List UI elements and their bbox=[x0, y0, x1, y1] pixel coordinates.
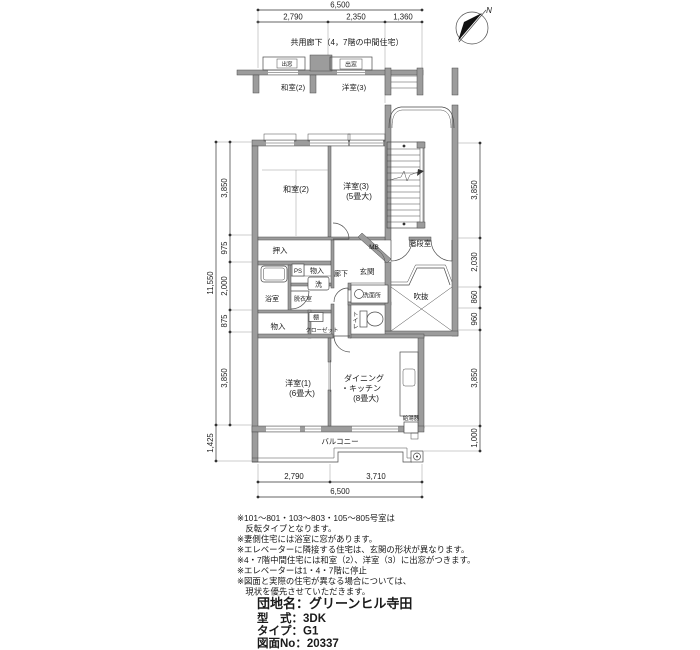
balcony-parapet bbox=[252, 452, 412, 462]
room-label-youshitsu1: 洋室(1) bbox=[285, 378, 311, 388]
dim-right-seg-4: 960 bbox=[470, 312, 479, 326]
room-label-ps: PS bbox=[294, 269, 302, 275]
room-label-youshitsu3: 洋室(3) bbox=[343, 181, 369, 191]
room-label-rouka: 廊下 bbox=[334, 269, 348, 278]
room-label-tana: 棚 bbox=[313, 314, 319, 322]
bay-left-label: 出窓 bbox=[281, 60, 293, 68]
north-arrow-icon bbox=[458, 13, 482, 41]
staircase bbox=[387, 142, 425, 228]
upper-section: 出窓 出窓 和室(2) 洋室(3) bbox=[237, 55, 458, 95]
room-label-toire: トイレ bbox=[351, 311, 358, 329]
dim-right-seg-6: 1,000 bbox=[470, 428, 479, 448]
upper-room-right-label: 洋室(3) bbox=[342, 82, 367, 92]
compass: N bbox=[456, 6, 492, 44]
room-label-yokushitsu: 浴室 bbox=[265, 294, 279, 303]
room-label-kyutouki: 給湯器 bbox=[403, 414, 420, 422]
title-plan-type: タイプ：G1 bbox=[257, 624, 319, 638]
dim-left-seg-5: 3,850 bbox=[220, 368, 229, 388]
note-line-4: ※エレベーターに隣接する住宅は、玄関の形状が異なります。 bbox=[237, 545, 469, 555]
room-label-fukinuke: 吹抜 bbox=[414, 291, 429, 301]
room-label-dining-1: ダイニング bbox=[344, 373, 384, 383]
toilet-tank bbox=[360, 311, 367, 327]
title-layout-type: 型 式：3DK bbox=[257, 611, 327, 625]
room-label-balcony: バルコニー bbox=[321, 437, 358, 446]
room-label-kaidanshitsu: 階段室 bbox=[409, 238, 432, 248]
dim-right-seg-2: 2,030 bbox=[470, 252, 479, 272]
dim-right-seg-5: 3,850 bbox=[470, 368, 479, 388]
room-label-washitsu2: 和室(2) bbox=[283, 184, 309, 194]
note-line-8: 現状を優先させていただきます。 bbox=[237, 587, 370, 597]
water-heater-box bbox=[404, 422, 418, 433]
kitchen-counter bbox=[400, 352, 418, 416]
dim-left-seg-1: 3,850 bbox=[220, 178, 229, 198]
room-label-monoire-lower: 物入 bbox=[271, 321, 286, 331]
bathtub bbox=[261, 266, 287, 282]
dim-bottom-seg-1: 2,790 bbox=[284, 472, 304, 481]
room-label-monoire-upper: 物入 bbox=[310, 266, 324, 275]
corridor-railing bbox=[391, 76, 417, 88]
bay-right-label: 出窓 bbox=[345, 61, 357, 69]
floor-plan-page: 6,500 2,790 2,350 1,360 N 共用廊下（4，7階の中間住宅… bbox=[0, 0, 700, 650]
stair-treads bbox=[387, 149, 420, 222]
title-block: 団地名：グリーンヒル寺田 型 式：3DK タイプ：G1 図面No：20337 bbox=[257, 596, 412, 650]
room-label-youshitsu3-size: (5畳大) bbox=[346, 191, 372, 201]
room-label-genkan: 玄関 bbox=[360, 266, 375, 276]
dim-left-seg-4: 875 bbox=[220, 314, 229, 328]
title-estate-name: 団地名：グリーンヒル寺田 bbox=[257, 596, 412, 611]
room-label-youshitsu1-size: (6畳大) bbox=[289, 388, 315, 398]
dim-left-seg-2: 975 bbox=[220, 241, 229, 255]
note-line-5: ※4・7階中間住宅には和室（2）、洋室（3）に出窓がつきます。 bbox=[237, 555, 475, 565]
room-label-dining-size: (8畳大) bbox=[353, 393, 379, 403]
toilet-bowl bbox=[367, 312, 383, 326]
void-railing bbox=[391, 268, 450, 285]
room-label-senmenjo: 洗面所 bbox=[363, 292, 381, 300]
washroom-door-arc bbox=[334, 288, 348, 302]
dim-bottom-total: 6,500 bbox=[330, 487, 350, 496]
compass-north-label: N bbox=[486, 6, 492, 15]
dim-left-seg-3: 2,000 bbox=[220, 276, 229, 296]
room-label-datsuishitsu: 脱衣室 bbox=[294, 295, 312, 303]
fixtures bbox=[261, 264, 418, 439]
sliding-door-symbol bbox=[329, 360, 331, 392]
dim-top-seg-2: 2,350 bbox=[346, 13, 366, 22]
note-line-1: ※101～801・103～803・105～805号室は bbox=[237, 513, 395, 523]
note-line-3: ※妻側住宅には浴室に窓があります。 bbox=[237, 534, 377, 544]
shared-corridor-label: 共用廊下（4，7階の中間住宅） bbox=[291, 37, 404, 47]
compass-circle bbox=[456, 12, 488, 44]
bottom-dimensions: 2,790 3,710 6,500 bbox=[257, 464, 424, 498]
dim-right-seg-1: 3,850 bbox=[470, 180, 479, 200]
dk-door-arc bbox=[334, 336, 350, 352]
neighbor-door-arc bbox=[431, 240, 452, 261]
room-label-closet: クローゼット bbox=[305, 326, 338, 334]
dim-top-seg-1: 2,790 bbox=[283, 13, 303, 22]
dim-bottom-seg-2: 3,710 bbox=[366, 472, 386, 481]
dim-top-seg-3: 1,360 bbox=[393, 13, 413, 22]
room3-door-arc bbox=[333, 223, 349, 239]
plan-walls bbox=[252, 105, 458, 462]
room-label-mb: MB bbox=[369, 244, 379, 251]
notes: ※101～801・103～803・105～805号室は 反転タイプとなります。 … bbox=[237, 513, 475, 597]
stair-direction-arrow bbox=[390, 171, 418, 181]
room-label-dining-2: ・キッチン bbox=[341, 384, 381, 393]
tatami-lines bbox=[262, 170, 328, 236]
note-line-2: 反転タイプとなります。 bbox=[237, 524, 336, 534]
note-line-6: ※エレベーターは1・4・7階に停止 bbox=[237, 566, 367, 576]
title-drawing-no: 図面No：20337 bbox=[257, 636, 339, 650]
dim-right-seg-3: 860 bbox=[470, 290, 479, 304]
dim-top-total: 6,500 bbox=[330, 1, 350, 10]
room-label-sentaku: 洗 bbox=[315, 280, 322, 289]
upper-room-left-label: 和室(2) bbox=[281, 82, 306, 92]
note-line-7: ※図面と実際の住宅が異なる場合については、 bbox=[237, 576, 411, 586]
left-dimensions: 3,850 975 2,000 875 3,850 11,550 1,425 bbox=[206, 141, 252, 463]
floor-plan-canvas: 6,500 2,790 2,350 1,360 N 共用廊下（4，7階の中間住宅… bbox=[0, 0, 700, 650]
dim-left-balcony: 1,425 bbox=[206, 433, 215, 453]
dim-left-total: 11,550 bbox=[206, 271, 215, 295]
room-label-oshiire: 押入 bbox=[273, 245, 288, 255]
